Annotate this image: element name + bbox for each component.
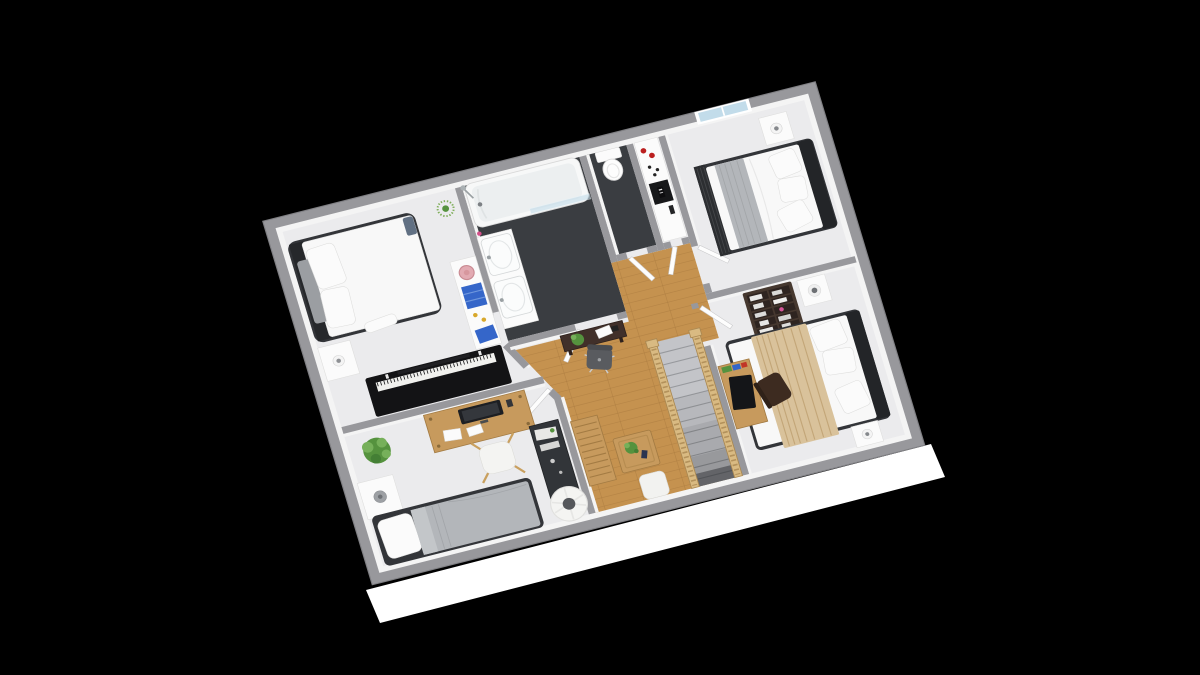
pillow [822,347,857,376]
floorplan-render-canvas: 3D isometric floor plan render of an upp… [0,0,1200,675]
papers [443,428,462,441]
monitor [729,375,757,411]
floorplan-3d-view: 3D isometric floor plan render of an upp… [0,0,1200,675]
pillow [777,175,809,203]
blue-ornament [641,450,647,459]
